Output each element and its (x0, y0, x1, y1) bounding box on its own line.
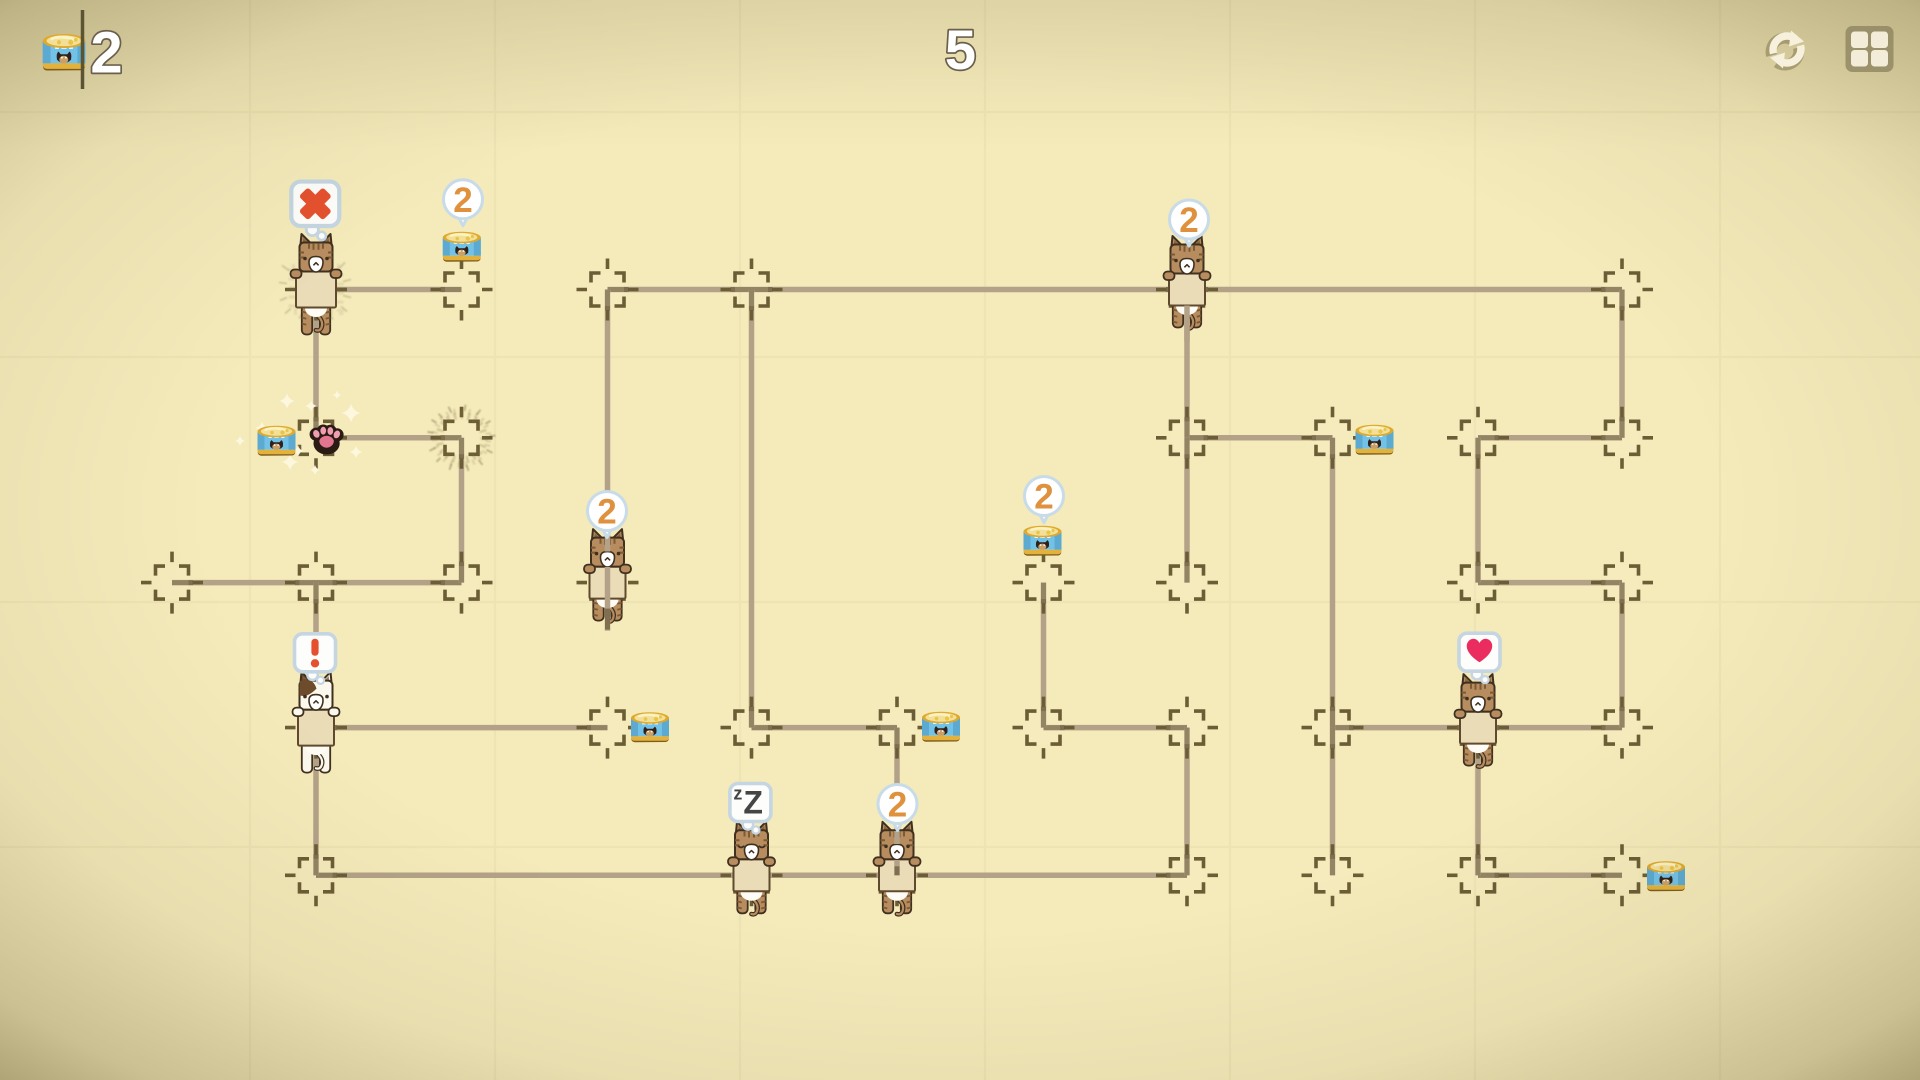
svg-text:5: 5 (945, 18, 976, 81)
svg-text:2: 2 (90, 21, 122, 86)
